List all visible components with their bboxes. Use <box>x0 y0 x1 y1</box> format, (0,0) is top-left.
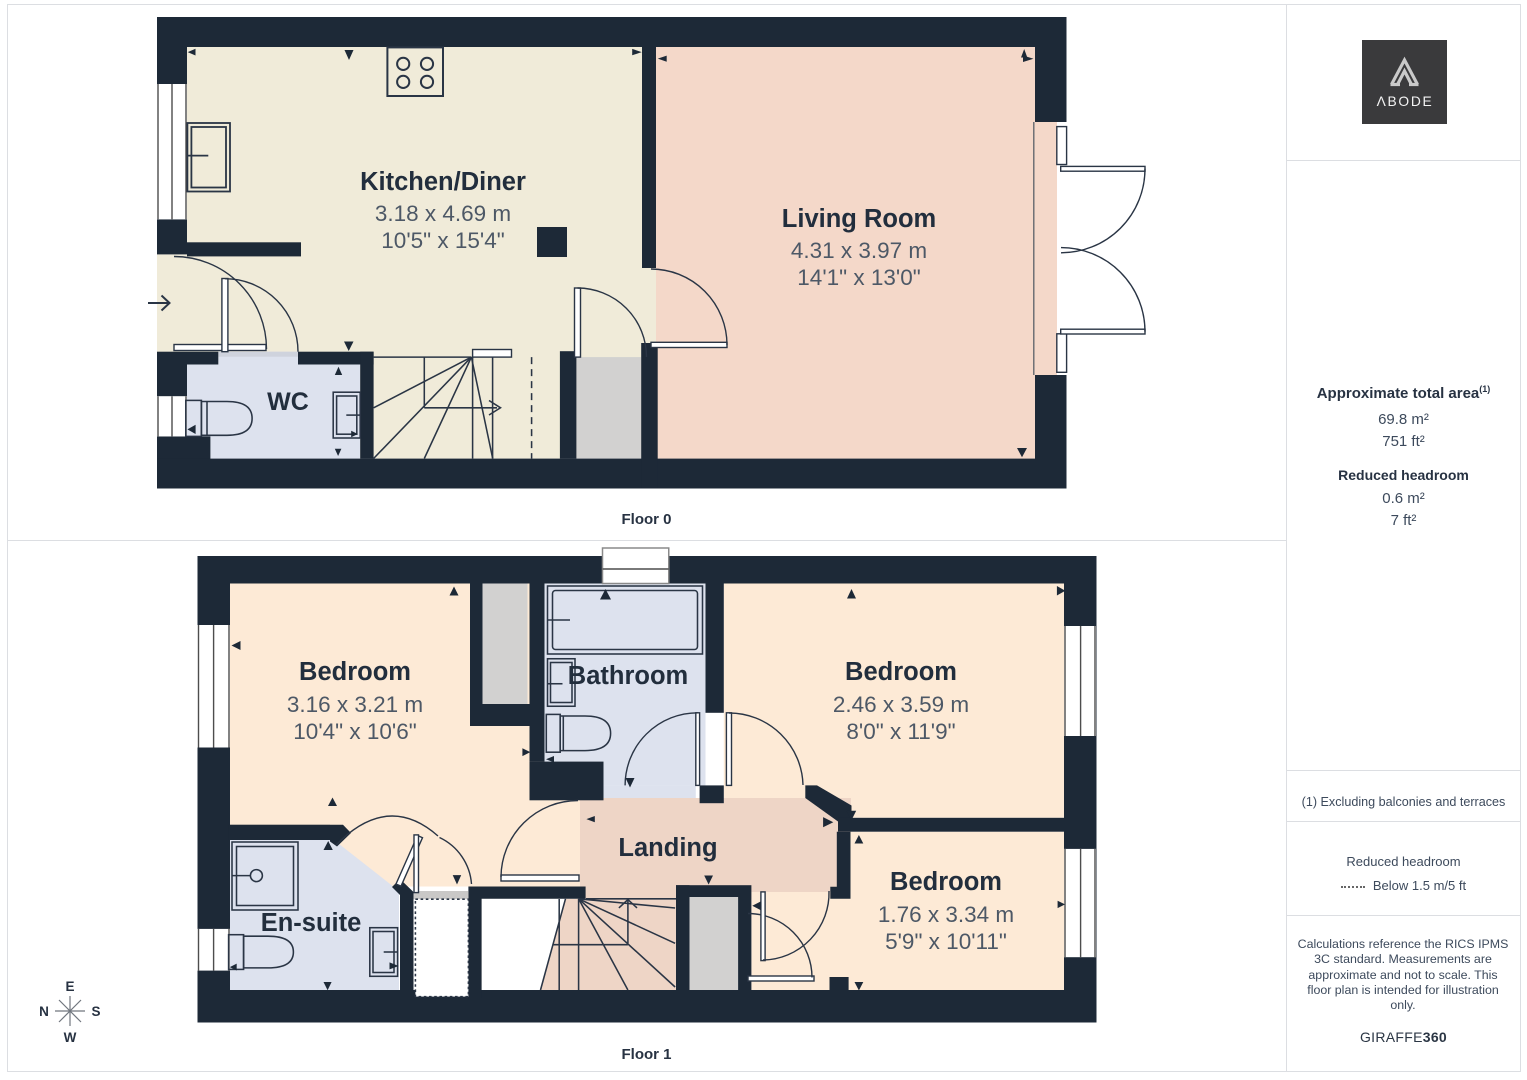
svg-text:2.46 x 3.59 m: 2.46 x 3.59 m <box>833 692 969 717</box>
svg-text:8'0" x 11'9": 8'0" x 11'9" <box>846 719 955 744</box>
svg-text:Bathroom: Bathroom <box>568 662 688 690</box>
svg-text:WC: WC <box>267 388 309 416</box>
svg-text:ΛBODE: ΛBODE <box>1377 94 1434 109</box>
svg-text:Bedroom: Bedroom <box>299 658 411 686</box>
svg-text:10'4" x 10'6": 10'4" x 10'6" <box>293 719 416 744</box>
svg-text:3.18 x 4.69 m: 3.18 x 4.69 m <box>375 201 511 226</box>
svg-text:14'1" x 13'0": 14'1" x 13'0" <box>797 265 920 290</box>
svg-text:En-suite: En-suite <box>261 909 362 937</box>
svg-text:3.16 x 3.21 m: 3.16 x 3.21 m <box>287 692 423 717</box>
svg-text:4.31 x 3.97 m: 4.31 x 3.97 m <box>791 238 927 263</box>
svg-text:10'5" x 15'4": 10'5" x 15'4" <box>381 228 504 253</box>
svg-text:Landing: Landing <box>618 834 717 862</box>
svg-text:1.76 x 3.34 m: 1.76 x 3.34 m <box>878 902 1014 927</box>
svg-text:Bedroom: Bedroom <box>845 658 957 686</box>
svg-text:5'9" x 10'11": 5'9" x 10'11" <box>885 929 1007 954</box>
svg-text:Bedroom: Bedroom <box>890 868 1002 896</box>
svg-text:Kitchen/Diner: Kitchen/Diner <box>360 168 526 196</box>
svg-text:Living Room: Living Room <box>782 205 936 233</box>
